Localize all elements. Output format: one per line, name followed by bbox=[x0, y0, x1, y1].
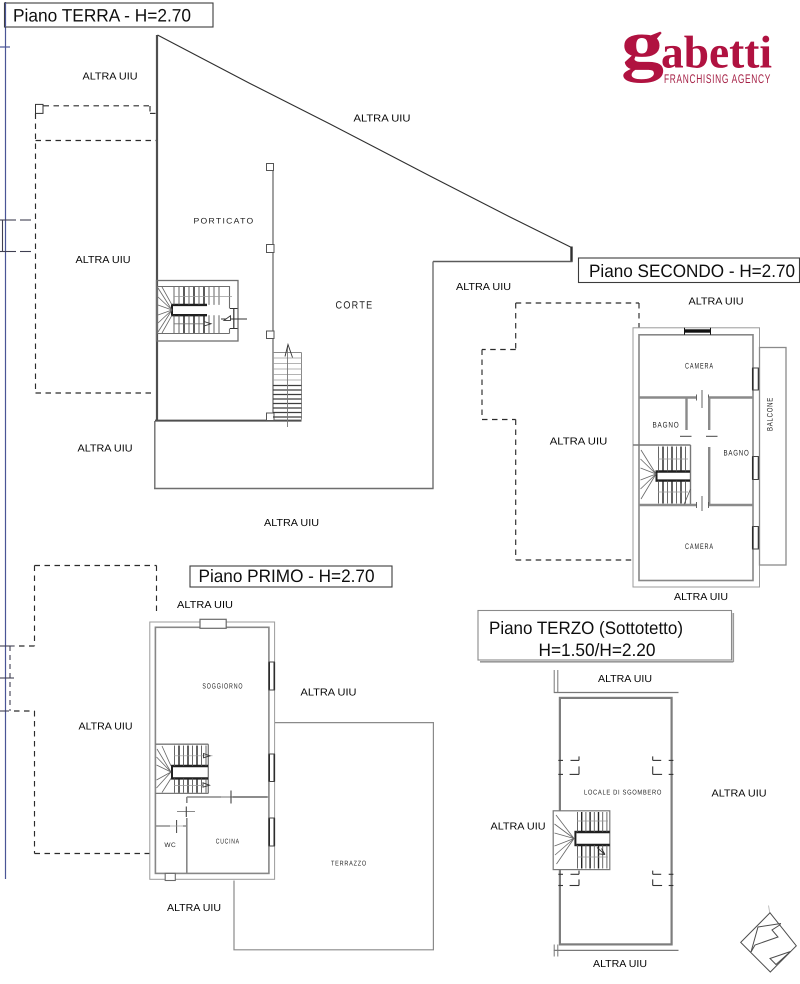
svg-text:ALTRA UIU: ALTRA UIU bbox=[712, 788, 767, 799]
svg-text:Piano TERRA - H=2.70: Piano TERRA - H=2.70 bbox=[13, 6, 191, 26]
svg-text:g: g bbox=[621, 7, 664, 84]
svg-text:ALTRA UIU: ALTRA UIU bbox=[79, 722, 133, 733]
svg-text:CAMERA: CAMERA bbox=[685, 361, 714, 370]
svg-text:ALTRA UIU: ALTRA UIU bbox=[177, 600, 233, 611]
svg-text:ALTRA UIU: ALTRA UIU bbox=[593, 959, 647, 970]
svg-text:LOCALE DI SGOMBERO: LOCALE DI SGOMBERO bbox=[584, 790, 662, 797]
svg-text:BALCONE: BALCONE bbox=[766, 397, 775, 431]
svg-text:PORTICATO: PORTICATO bbox=[194, 217, 255, 226]
svg-text:BAGNO: BAGNO bbox=[653, 420, 680, 429]
svg-text:BAGNO: BAGNO bbox=[724, 448, 750, 457]
svg-text:ALTRA UIU: ALTRA UIU bbox=[674, 592, 728, 603]
svg-text:ALTRA UIU: ALTRA UIU bbox=[598, 674, 652, 685]
svg-text:abetti: abetti bbox=[661, 27, 772, 78]
svg-text:ALTRA UIU: ALTRA UIU bbox=[76, 255, 131, 266]
svg-text:TERRAZZO: TERRAZZO bbox=[331, 860, 367, 867]
svg-text:ALTRA UIU: ALTRA UIU bbox=[301, 687, 357, 698]
svg-text:SOGGIORNO: SOGGIORNO bbox=[202, 682, 243, 691]
svg-text:ALTRA UIU: ALTRA UIU bbox=[456, 282, 511, 293]
svg-text:ALTRA UIU: ALTRA UIU bbox=[491, 822, 546, 833]
svg-text:WC: WC bbox=[164, 842, 176, 849]
svg-text:ALTRA UIU: ALTRA UIU bbox=[550, 436, 608, 447]
svg-text:Piano TERZO (Sottotetto): Piano TERZO (Sottotetto) bbox=[489, 618, 683, 638]
svg-text:FRANCHISING AGENCY: FRANCHISING AGENCY bbox=[664, 72, 771, 86]
svg-text:ALTRA UIU: ALTRA UIU bbox=[83, 72, 138, 83]
svg-text:ALTRA UIU: ALTRA UIU bbox=[264, 518, 319, 529]
svg-text:CAMERA: CAMERA bbox=[685, 542, 714, 551]
svg-text:H=1.50/H=2.20: H=1.50/H=2.20 bbox=[539, 640, 656, 660]
svg-text:ALTRA UIU: ALTRA UIU bbox=[78, 444, 133, 455]
svg-text:ALTRA UIU: ALTRA UIU bbox=[689, 297, 744, 308]
svg-text:ALTRA UIU: ALTRA UIU bbox=[167, 903, 221, 914]
svg-text:CORTE: CORTE bbox=[336, 300, 374, 312]
svg-text:CUCINA: CUCINA bbox=[216, 839, 240, 846]
svg-text:Piano SECONDO - H=2.70: Piano SECONDO - H=2.70 bbox=[589, 261, 795, 281]
svg-text:ALTRA UIU: ALTRA UIU bbox=[354, 114, 411, 125]
svg-text:Piano PRIMO - H=2.70: Piano PRIMO - H=2.70 bbox=[199, 566, 375, 586]
